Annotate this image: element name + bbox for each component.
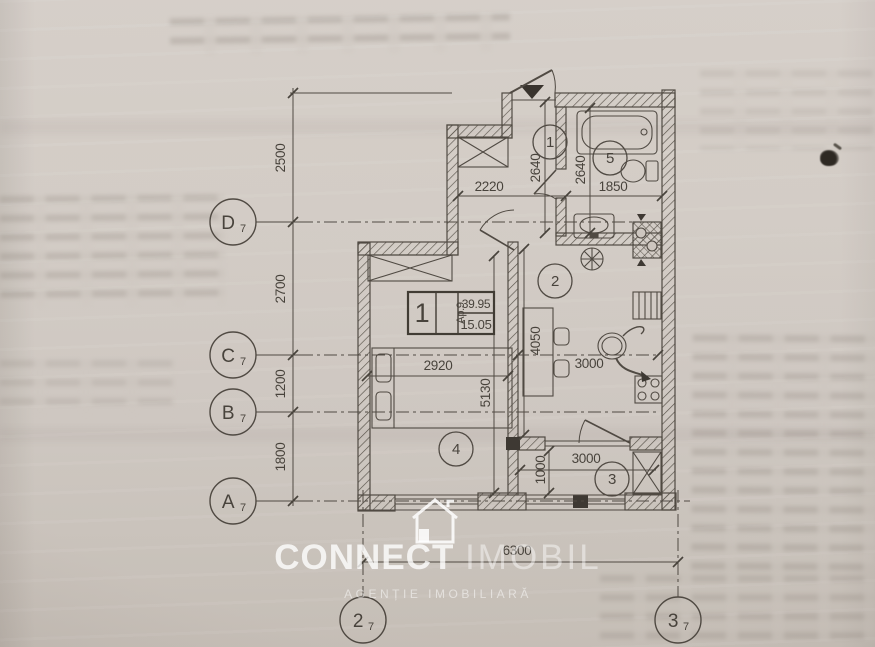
bathtub	[577, 111, 657, 154]
wall-top-bath	[555, 93, 675, 107]
dim-label-kitchen-depth: 4050	[528, 327, 543, 356]
dim-label-bath-width: 1850	[599, 179, 628, 194]
room-number-balcony: 3	[608, 471, 616, 488]
extractor-fan-icon	[581, 248, 603, 270]
wall-living-top	[358, 242, 458, 255]
axis-lines	[256, 222, 690, 597]
annotation-arrow	[598, 327, 651, 382]
dim-label-balcony-width: 3000	[572, 451, 601, 466]
dim-label-1800: 1800	[273, 443, 288, 472]
floor-plan: 2500 2700 1200 1800 2220 2640 2640 1850 …	[0, 0, 875, 647]
balcony-door-swing	[579, 420, 585, 443]
axis-sub-d: 7	[240, 223, 246, 235]
dim-label-living-depth: 5130	[478, 379, 493, 408]
axis-label-b: B	[222, 403, 234, 424]
dim-label-living-width: 2920	[424, 358, 453, 373]
wall-living-kitchen-divider	[508, 242, 518, 495]
dim-label-hall-depth: 2640	[528, 154, 543, 183]
axis-label-3: 3	[668, 611, 678, 632]
dim-label-balcony-depth: 1000	[533, 456, 548, 485]
dim-label-2500: 2500	[273, 144, 288, 173]
stamp-area-total: 39.95	[462, 297, 491, 311]
stamp-number: 1	[415, 298, 430, 328]
hall-door-swing	[480, 210, 514, 230]
wall-hall-left	[447, 125, 458, 255]
axis-label-a: A	[222, 492, 235, 513]
dim-label-1200: 1200	[273, 370, 288, 399]
hall-door-leaf	[480, 230, 514, 250]
wall-hall-bath-divider-a	[556, 107, 566, 169]
axis-label-c: C	[221, 346, 234, 367]
dim-label-hall-width: 2220	[475, 179, 504, 194]
wall-hall-bath-divider-b	[556, 198, 566, 236]
chair	[554, 328, 569, 345]
axis-sub-2: 7	[368, 621, 374, 633]
pier-bottom-left	[358, 495, 395, 511]
axis-label-d: D	[221, 213, 234, 234]
axis-label-2: 2	[353, 611, 363, 632]
room-number-hall: 1	[546, 134, 554, 151]
stove	[635, 376, 662, 403]
balcony-door-leaf	[585, 420, 630, 443]
dim-label-kitchen-width: 3000	[575, 356, 604, 371]
dim-label-total-width: 6300	[503, 543, 532, 558]
pier-black-divider	[506, 437, 520, 450]
dim-label-2700: 2700	[273, 275, 288, 304]
balcony-cabinet	[633, 452, 661, 494]
chair	[554, 360, 569, 377]
wardrobe-living	[368, 255, 452, 281]
entry-door-swing	[552, 70, 555, 93]
wardrobe-hall	[458, 137, 508, 167]
axis-sub-b: 7	[240, 413, 246, 425]
axis-sub-3: 7	[683, 621, 689, 633]
dim-label-bath-depth: 2640	[573, 156, 588, 185]
wall-kitchen-balcony-a	[518, 437, 545, 450]
fridge	[633, 292, 661, 319]
entry-arrow	[520, 85, 544, 99]
axis-bubbles: D 7 C 7 B 7 A 7 2 7 3 7	[210, 199, 701, 643]
apartment-stamp: 1 Ap.9 39.95 15.05	[408, 292, 494, 334]
stamp-area-living: 15.05	[460, 317, 491, 332]
wall-right-exterior	[662, 90, 675, 510]
scanned-floor-plan-photo: 2500 2700 1200 1800 2220 2640 2640 1850 …	[0, 0, 875, 647]
room-number-living: 4	[452, 441, 460, 458]
axis-sub-c: 7	[240, 356, 246, 368]
wall-kitchen-balcony-b	[630, 437, 662, 450]
room-number-kitchen: 2	[551, 273, 559, 290]
room-number-bath: 5	[606, 150, 614, 167]
axis-sub-a: 7	[240, 502, 246, 514]
